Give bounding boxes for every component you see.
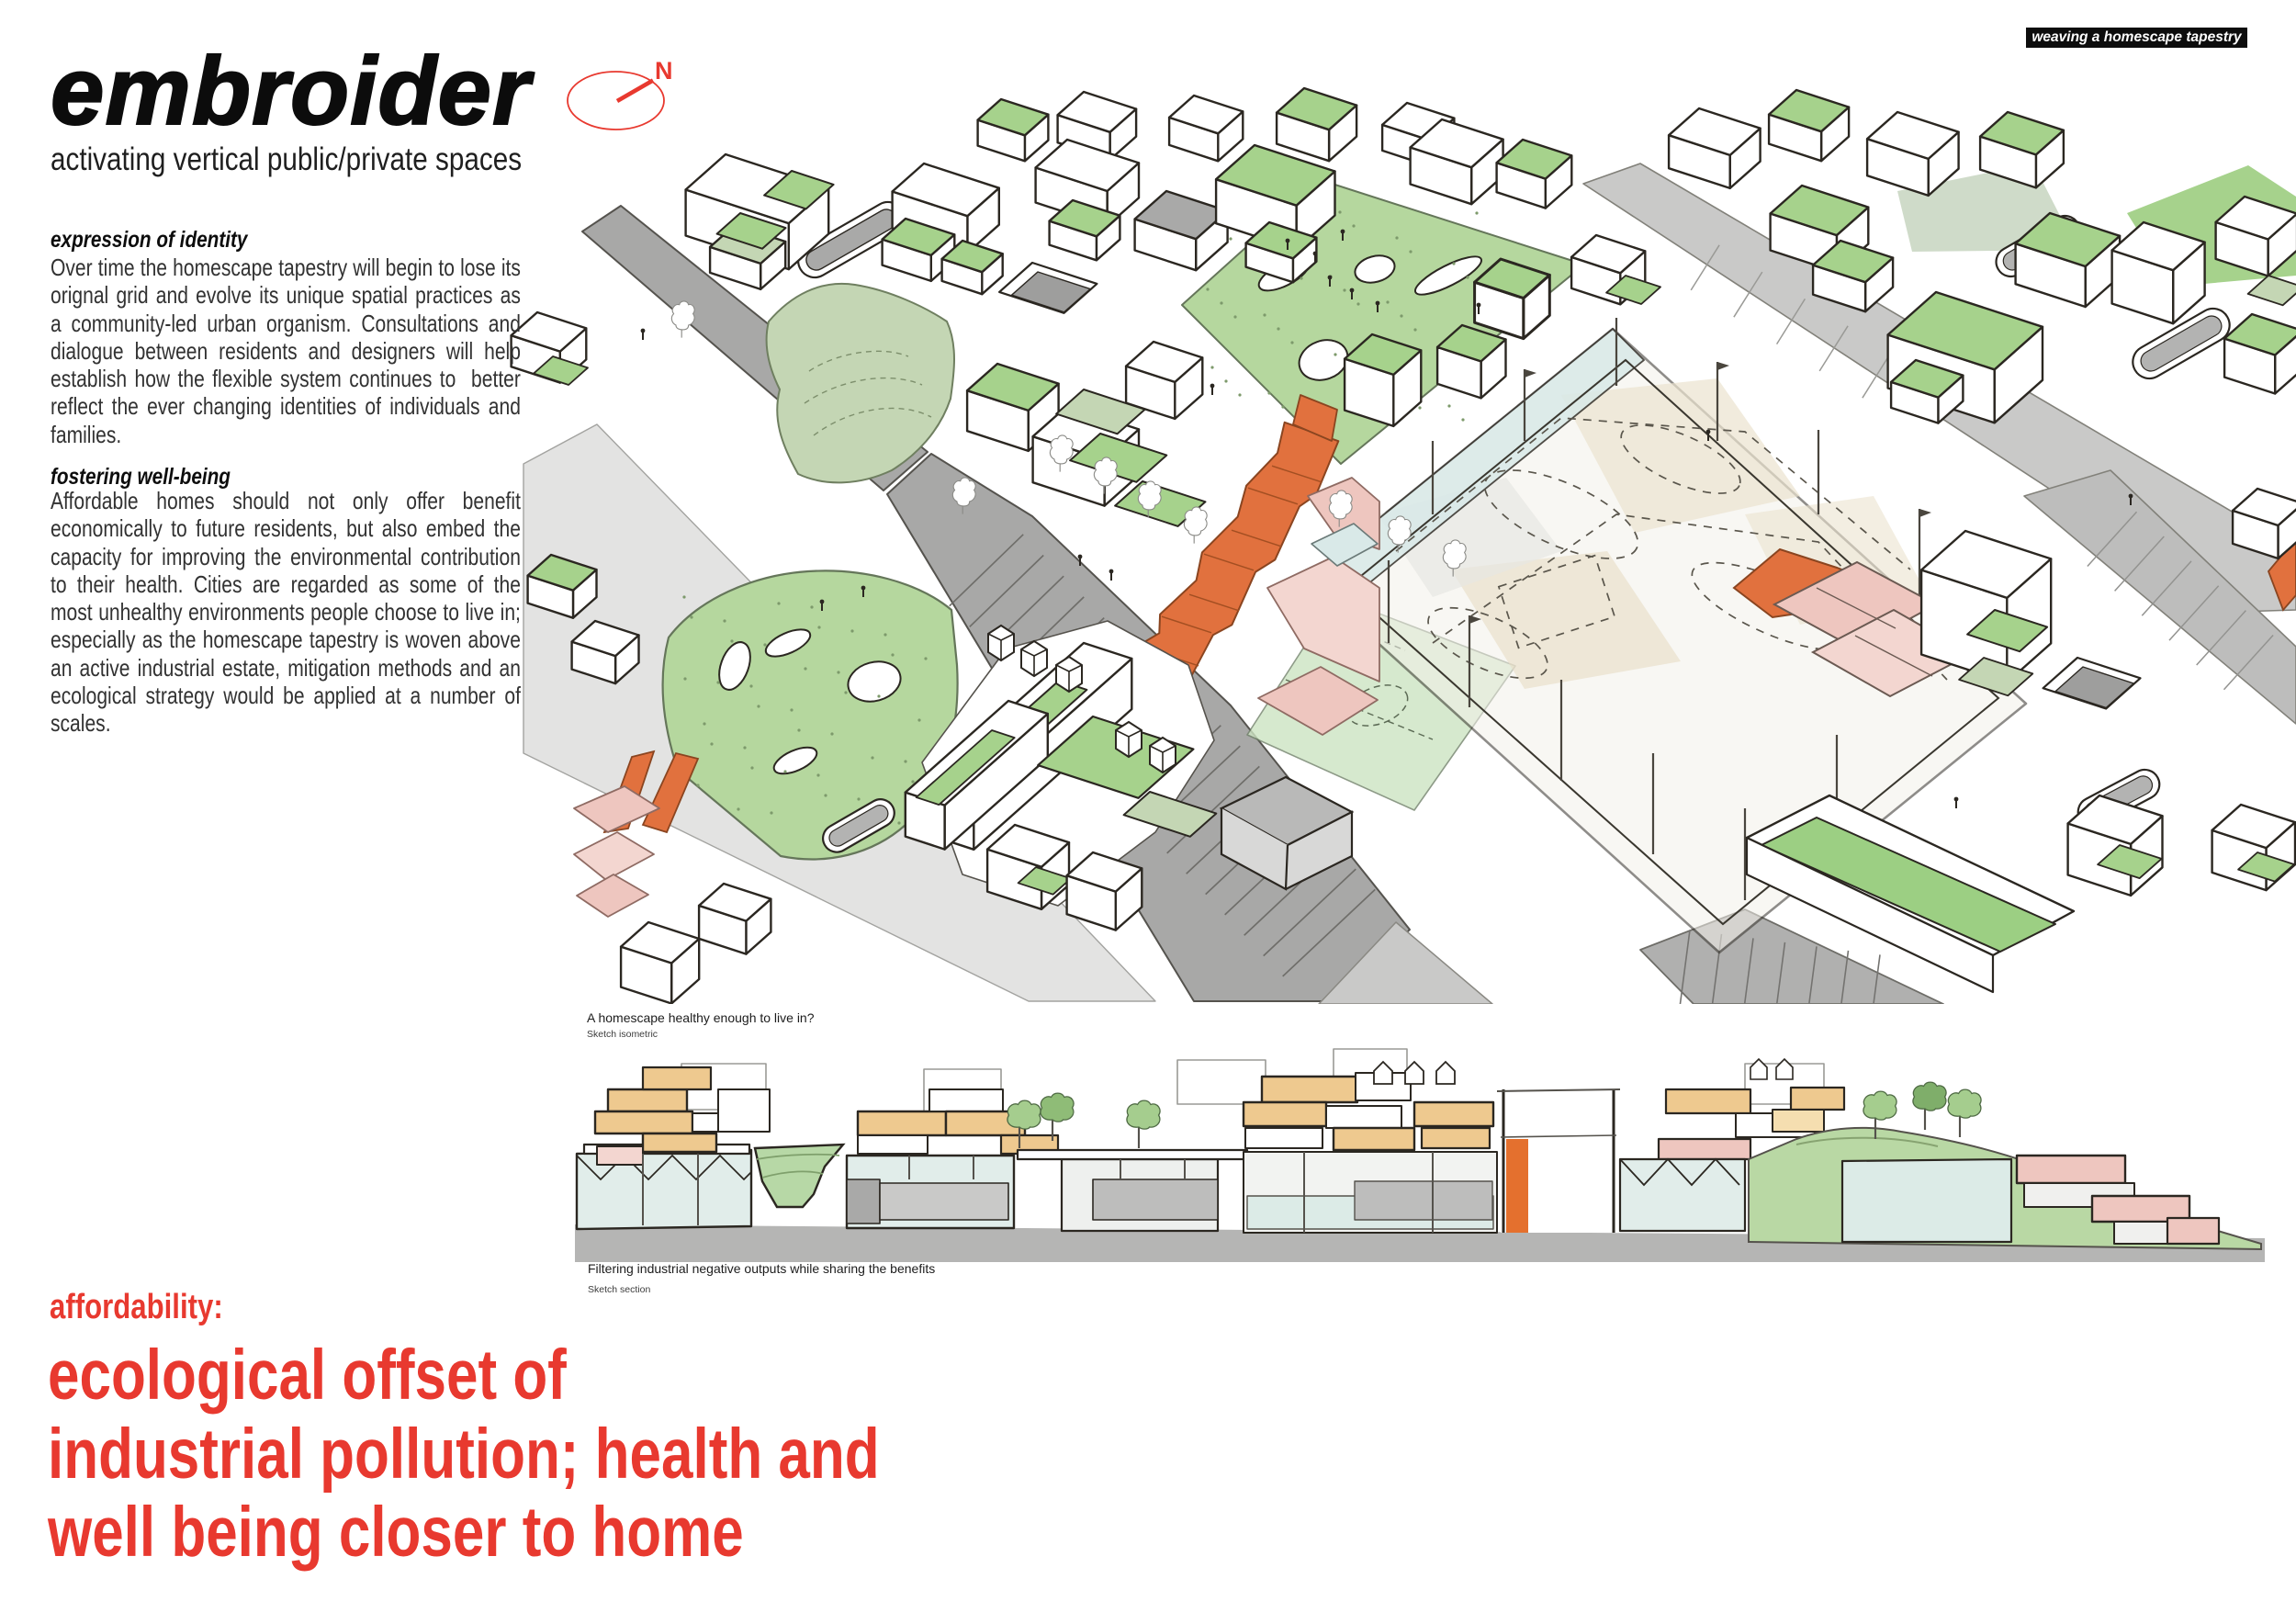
svg-text:N: N xyxy=(655,57,673,85)
